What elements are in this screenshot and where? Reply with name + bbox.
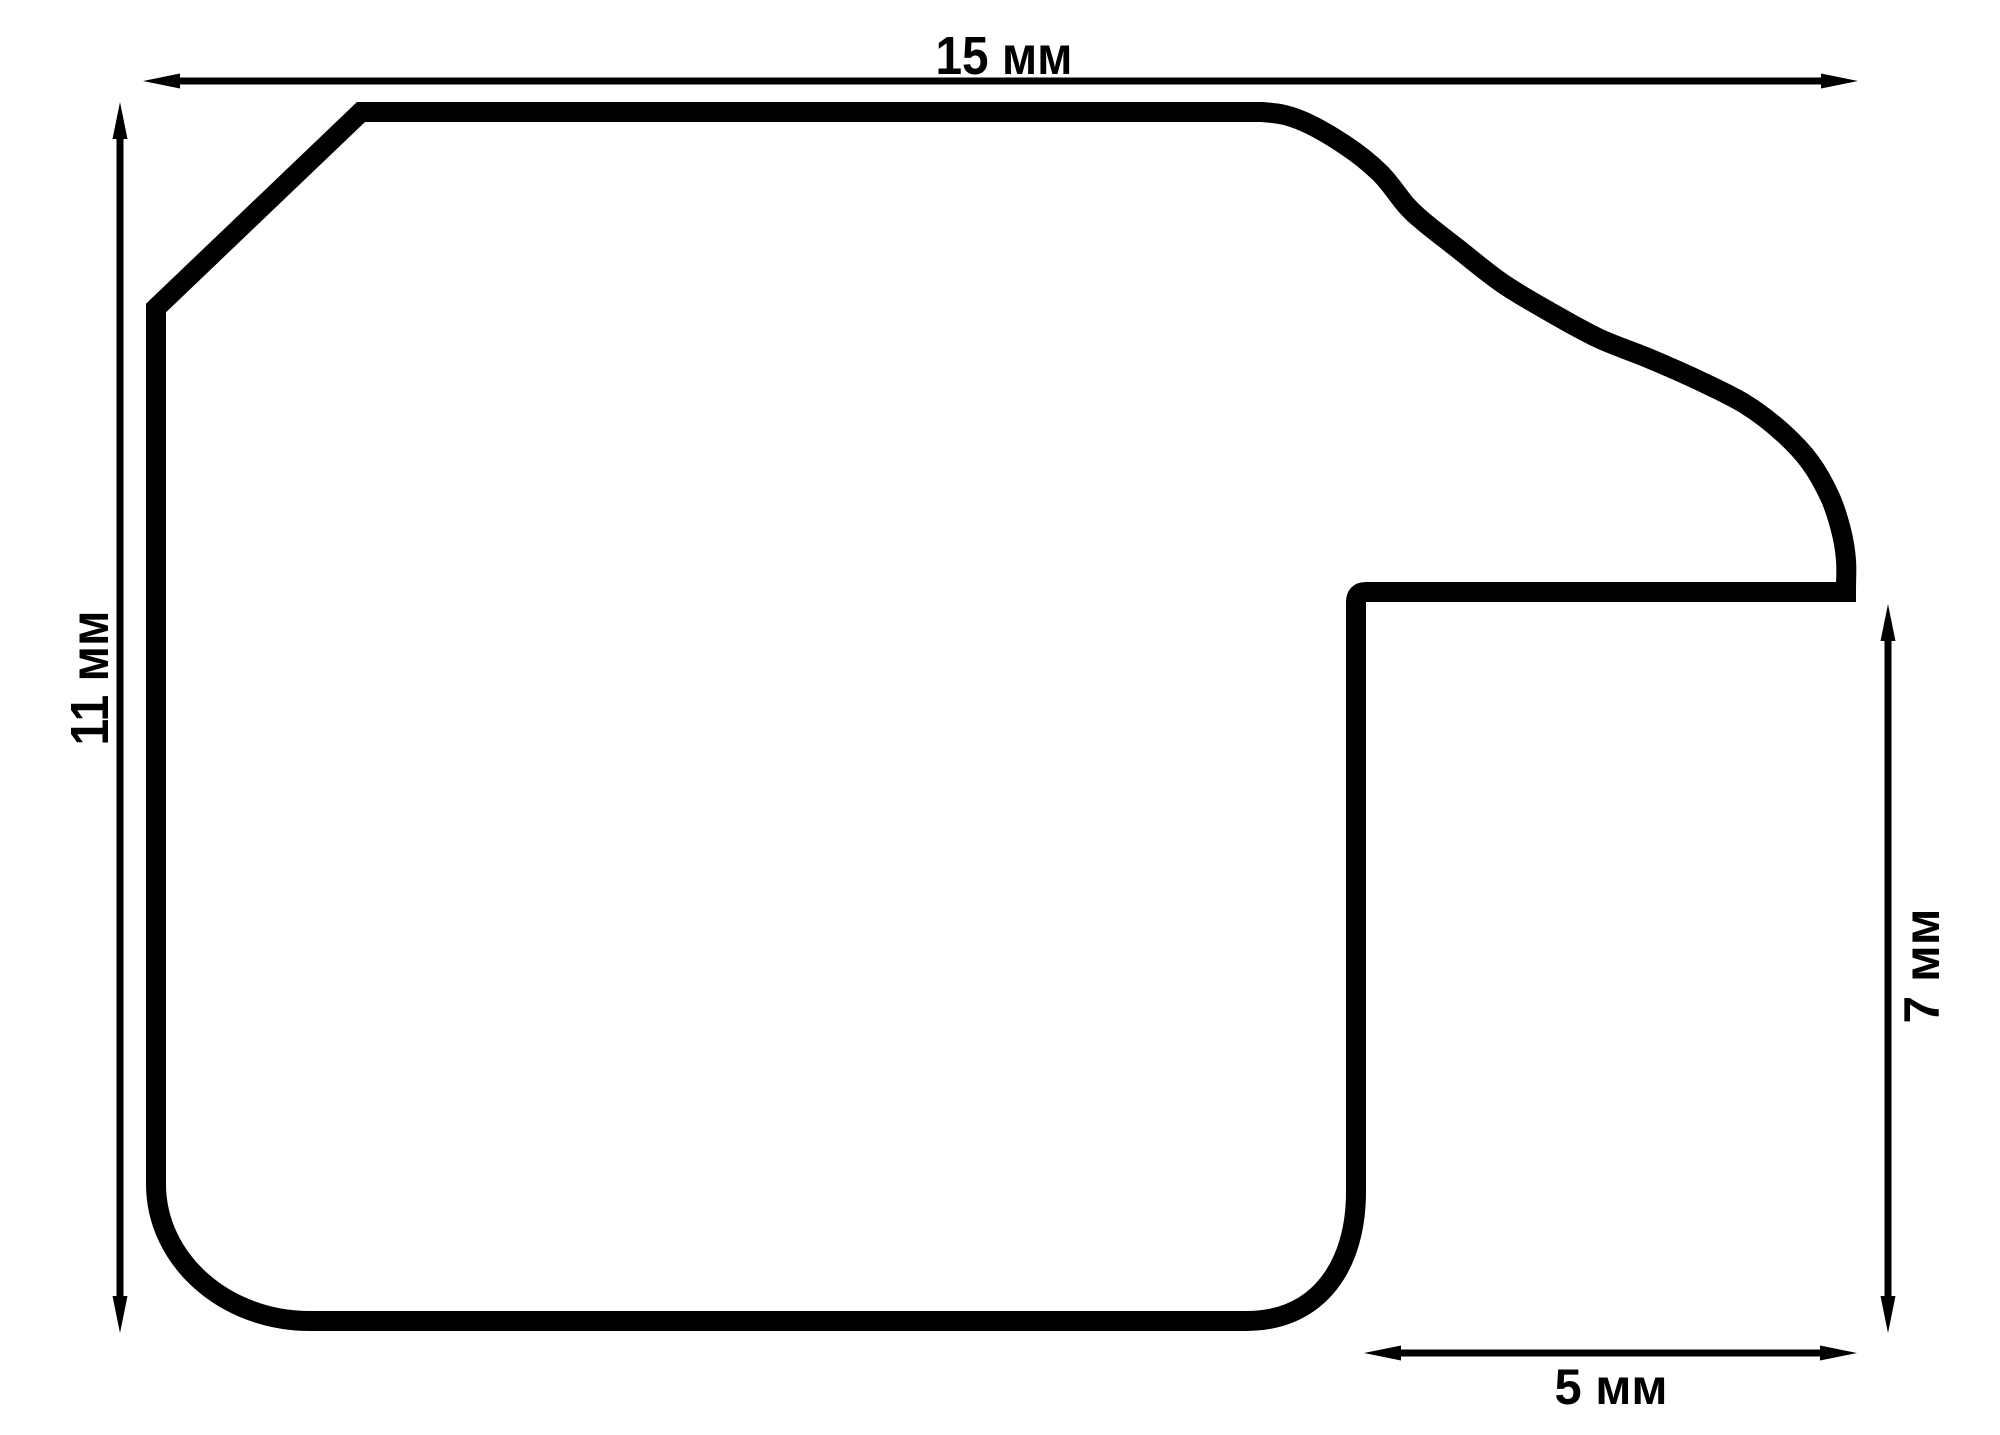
svg-text:5 мм: 5 мм xyxy=(1555,1359,1668,1415)
svg-text:7 мм: 7 мм xyxy=(1894,909,1950,1024)
svg-text:11 мм: 11 мм xyxy=(60,611,120,746)
svg-text:15 мм: 15 мм xyxy=(936,26,1073,86)
